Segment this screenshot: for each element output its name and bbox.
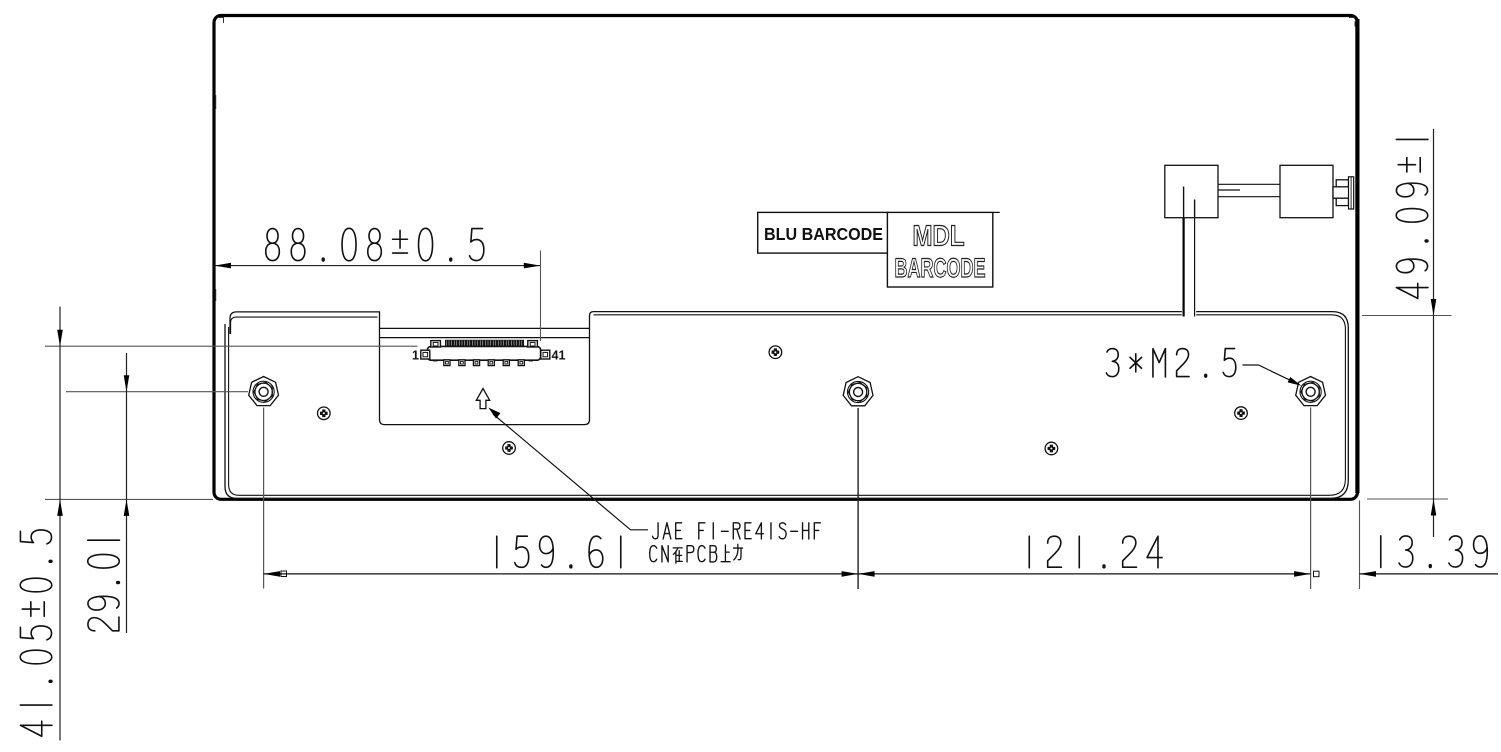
svg-text:41: 41 (552, 348, 566, 362)
svg-text:MDL: MDL (913, 221, 965, 253)
svg-text:BLU BARCODE: BLU BARCODE (764, 224, 883, 244)
svg-text:1: 1 (412, 348, 419, 362)
svg-text:BARCODE: BARCODE (895, 253, 986, 283)
